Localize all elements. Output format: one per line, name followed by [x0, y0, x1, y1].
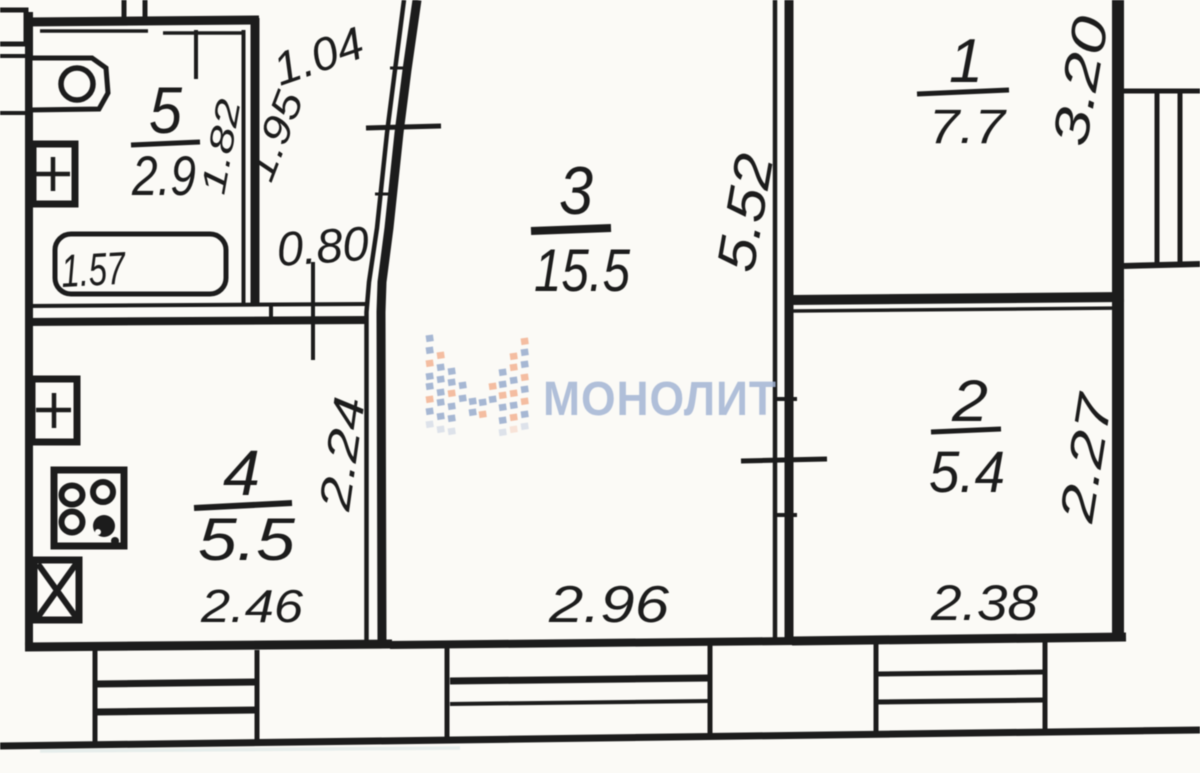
svg-text:7.7: 7.7: [929, 101, 1008, 154]
svg-text:2: 2: [951, 369, 988, 434]
svg-text:2.46: 2.46: [200, 580, 304, 632]
svg-text:2.9: 2.9: [131, 144, 196, 207]
svg-text:5: 5: [149, 73, 182, 147]
svg-text:15.5: 15.5: [534, 237, 631, 304]
svg-text:5.4: 5.4: [929, 440, 1005, 505]
svg-text:2.96: 2.96: [548, 576, 669, 634]
svg-text:0.80: 0.80: [275, 218, 371, 277]
svg-text:1.57: 1.57: [60, 242, 128, 297]
svg-text:МОНОЛИТ: МОНОЛИТ: [543, 373, 777, 426]
svg-text:1: 1: [949, 27, 983, 96]
svg-text:2.38: 2.38: [930, 575, 1038, 631]
svg-text:3: 3: [559, 153, 593, 229]
svg-text:4: 4: [223, 437, 260, 509]
svg-text:5.5: 5.5: [198, 506, 296, 573]
